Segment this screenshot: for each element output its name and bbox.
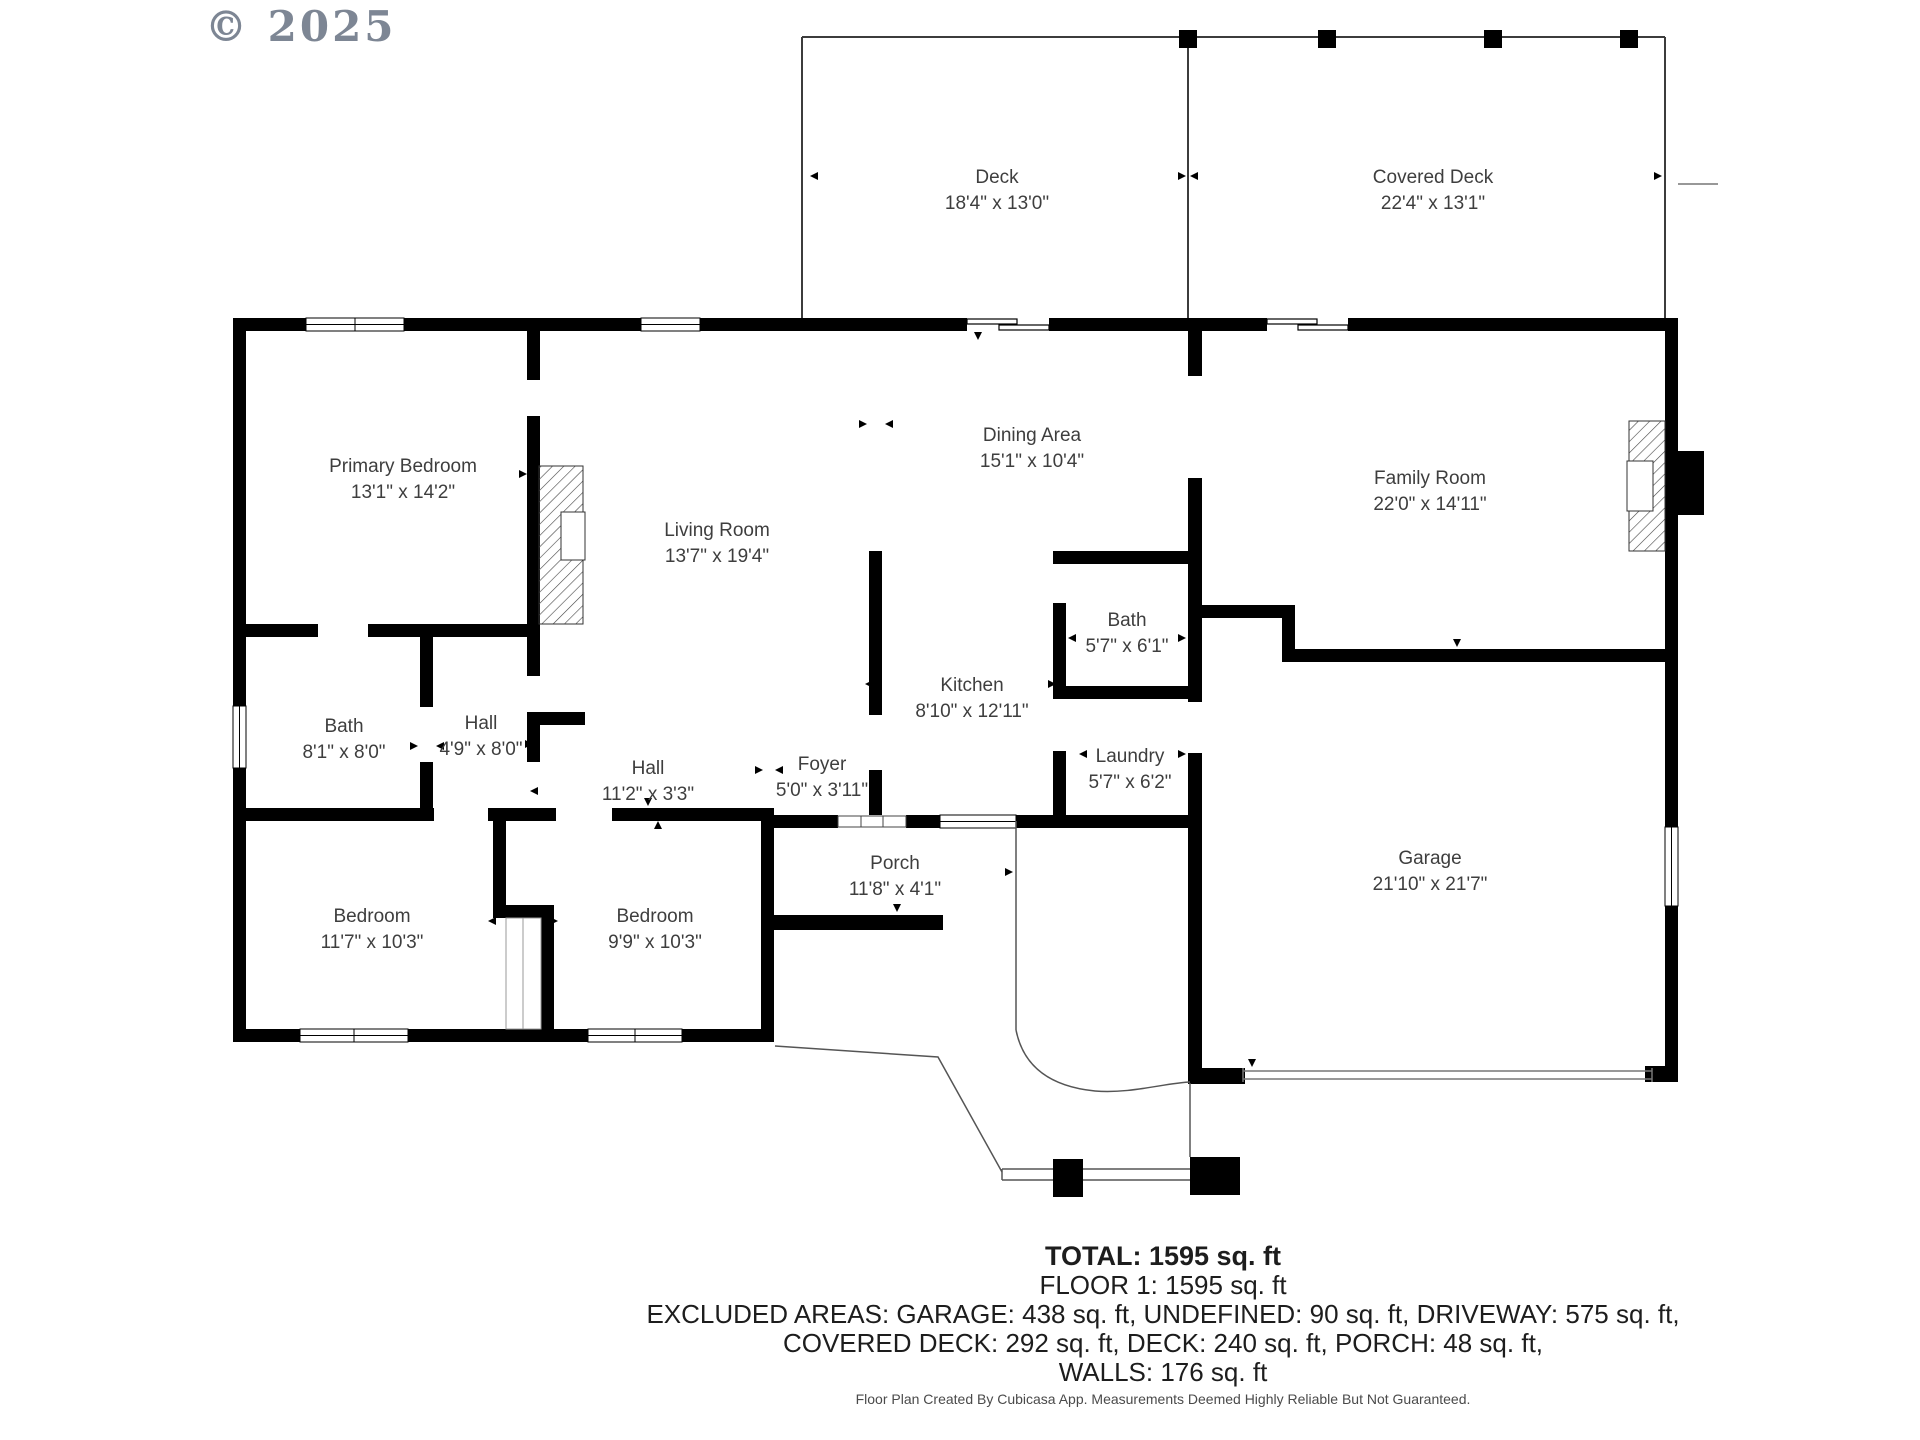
excluded-areas-line1: EXCLUDED AREAS: GARAGE: 438 sq. ft, UNDE… [283,1300,1920,1329]
room-name: Bath [1085,608,1168,634]
room-dims: 13'7" x 19'4" [664,544,770,570]
room-name: Deck [945,165,1049,191]
room-label-hall-long: Hall11'2" x 3'3" [602,756,694,808]
floor-plan-page: © 2025 [0,0,1920,1440]
room-name: Covered Deck [1373,165,1493,191]
room-dims: 15'1" x 10'4" [980,449,1084,475]
room-label-garage: Garage21'10" x 21'7" [1373,846,1488,898]
room-dims: 5'0" x 3'11" [776,778,868,804]
room-name: Hall [602,756,694,782]
room-name: Family Room [1373,466,1486,492]
room-dims: 13'1" x 14'2" [329,480,477,506]
room-dims: 18'4" x 13'0" [945,191,1049,217]
room-name: Foyer [776,752,868,778]
room-name: Bedroom [321,904,424,930]
room-label-covered-deck: Covered Deck22'4" x 13'1" [1373,165,1493,217]
excluded-areas-line2: COVERED DECK: 292 sq. ft, DECK: 240 sq. … [283,1329,1920,1358]
total-area: TOTAL: 1595 sq. ft [283,1242,1920,1271]
room-name: Porch [849,851,941,877]
room-label-hall-small: Hall4'9" x 8'0" [439,711,522,763]
room-label-bath-left: Bath8'1" x 8'0" [302,714,385,766]
room-labels: Deck18'4" x 13'0"Covered Deck22'4" x 13'… [0,0,1920,1440]
room-name: Living Room [664,518,770,544]
room-dims: 11'8" x 4'1" [849,877,941,903]
room-label-laundry: Laundry5'7" x 6'2" [1088,744,1171,796]
room-label-family-room: Family Room22'0" x 14'11" [1373,466,1486,518]
room-dims: 22'4" x 13'1" [1373,191,1493,217]
room-name: Hall [439,711,522,737]
room-label-deck: Deck18'4" x 13'0" [945,165,1049,217]
room-name: Laundry [1088,744,1171,770]
room-label-foyer: Foyer5'0" x 3'11" [776,752,868,804]
room-label-porch: Porch11'8" x 4'1" [849,851,941,903]
room-dims: 9'9" x 10'3" [608,930,702,956]
room-dims: 11'2" x 3'3" [602,782,694,808]
room-label-living-room: Living Room13'7" x 19'4" [664,518,770,570]
room-dims: 8'10" x 12'11" [915,699,1028,725]
room-label-bedroom-right: Bedroom9'9" x 10'3" [608,904,702,956]
area-summary: TOTAL: 1595 sq. ft FLOOR 1: 1595 sq. ft … [283,1242,1920,1387]
room-dims: 22'0" x 14'11" [1373,492,1486,518]
floor-area: FLOOR 1: 1595 sq. ft [283,1271,1920,1300]
room-dims: 11'7" x 10'3" [321,930,424,956]
room-dims: 5'7" x 6'2" [1088,770,1171,796]
room-dims: 4'9" x 8'0" [439,737,522,763]
room-label-dining-area: Dining Area15'1" x 10'4" [980,423,1084,475]
room-label-bath-upper: Bath5'7" x 6'1" [1085,608,1168,660]
room-label-kitchen: Kitchen8'10" x 12'11" [915,673,1028,725]
disclaimer-note: Floor Plan Created By Cubicasa App. Meas… [283,1391,1920,1407]
room-label-bedroom-left: Bedroom11'7" x 10'3" [321,904,424,956]
room-name: Bedroom [608,904,702,930]
room-name: Kitchen [915,673,1028,699]
room-dims: 21'10" x 21'7" [1373,872,1488,898]
room-name: Primary Bedroom [329,454,477,480]
room-name: Bath [302,714,385,740]
room-dims: 8'1" x 8'0" [302,740,385,766]
room-name: Garage [1373,846,1488,872]
room-name: Dining Area [980,423,1084,449]
room-dims: 5'7" x 6'1" [1085,634,1168,660]
room-label-primary-bedroom: Primary Bedroom13'1" x 14'2" [329,454,477,506]
walls-area: WALLS: 176 sq. ft [283,1358,1920,1387]
